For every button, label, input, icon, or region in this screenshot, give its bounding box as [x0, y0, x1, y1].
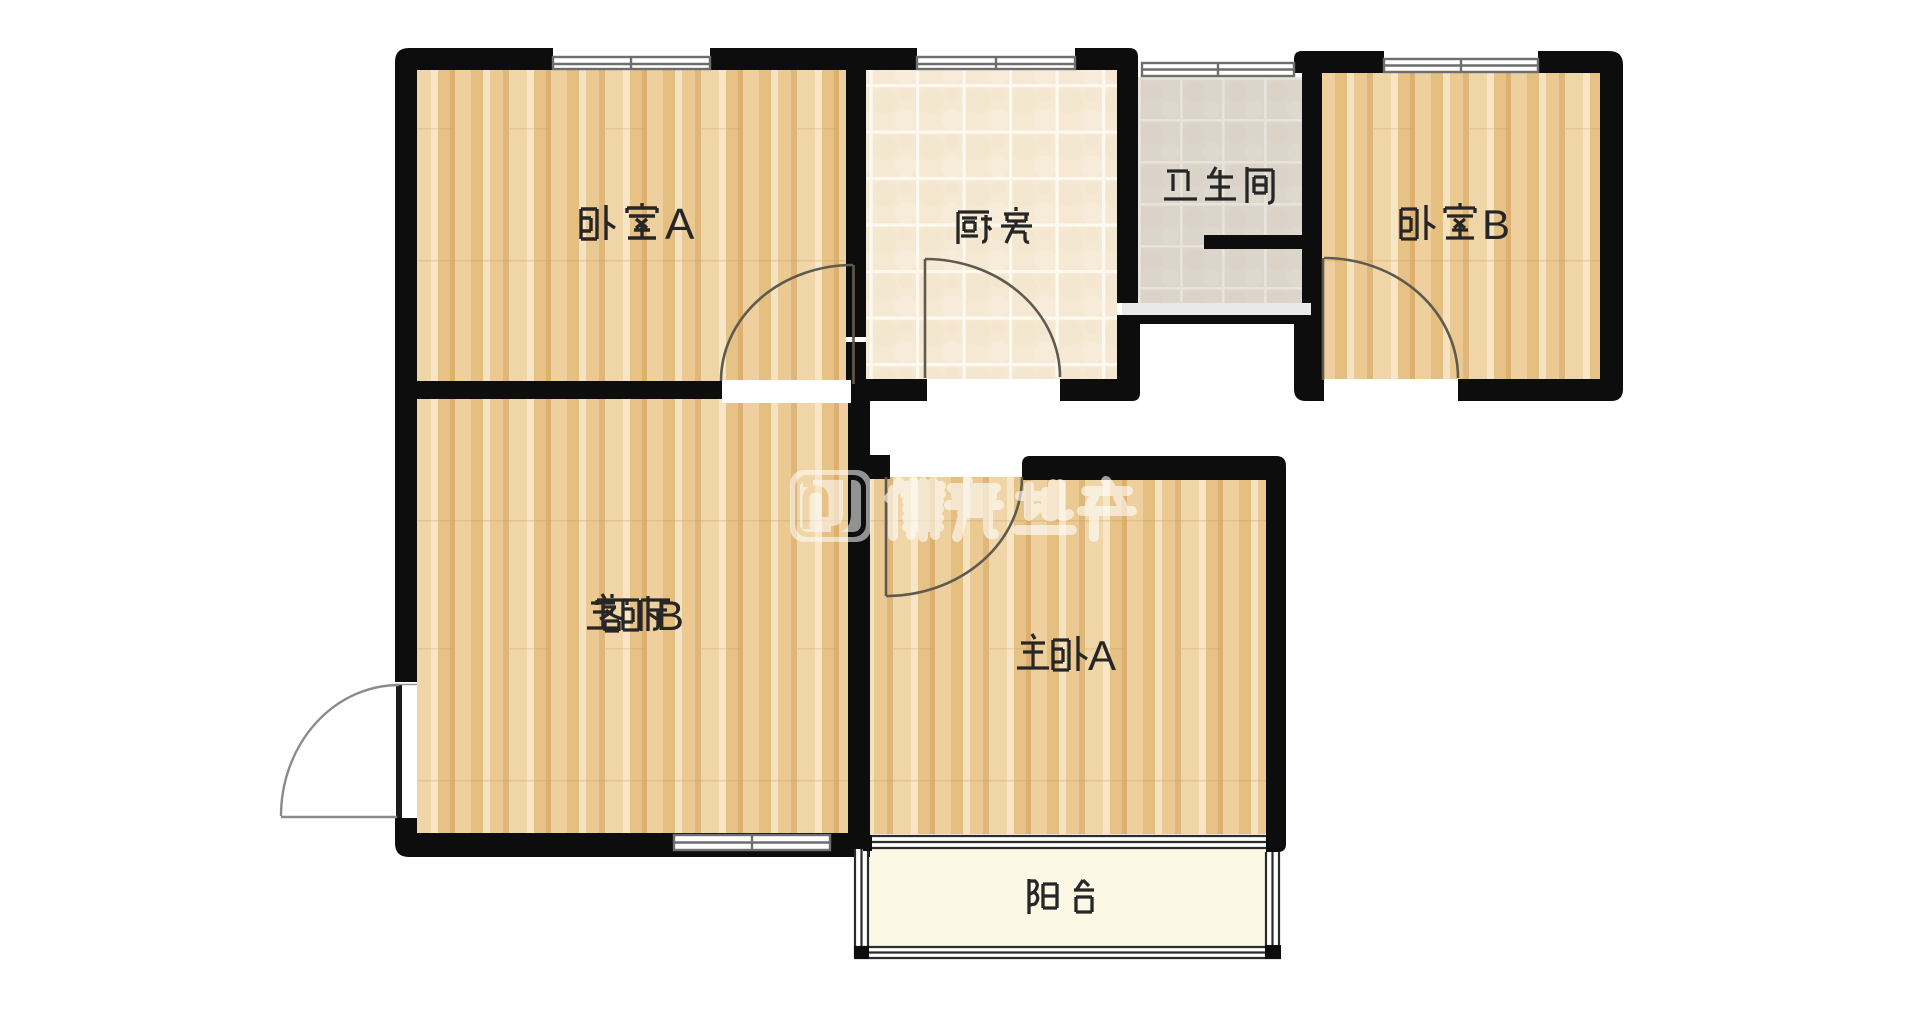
svg-text:B: B — [1482, 201, 1510, 248]
svg-text:A: A — [665, 200, 695, 249]
svg-text:A: A — [1088, 632, 1116, 679]
svg-text:B: B — [656, 592, 684, 639]
